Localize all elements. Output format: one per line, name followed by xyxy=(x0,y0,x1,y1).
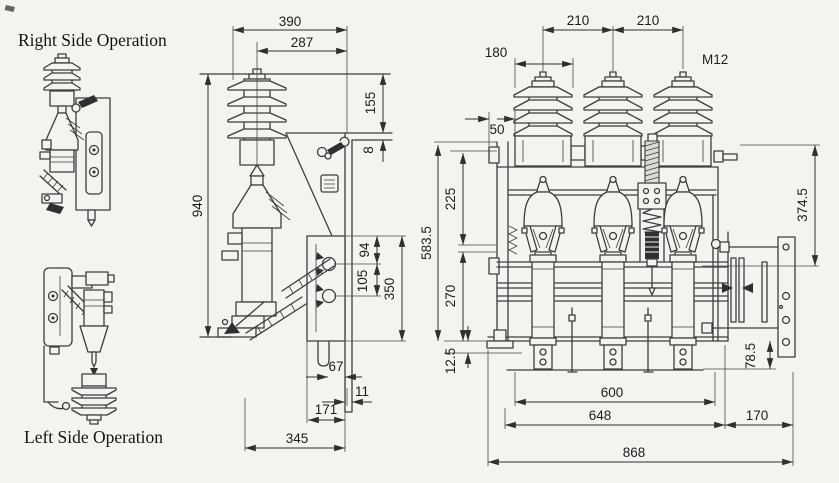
dim-8: 8 xyxy=(361,146,376,154)
dim-940: 940 xyxy=(190,195,205,218)
dim-868: 868 xyxy=(623,445,646,460)
dim-50: 50 xyxy=(489,122,504,137)
dim-345: 345 xyxy=(286,431,309,446)
dim-12-5: 12.5 xyxy=(443,348,458,374)
caption-right-side-operation: Right Side Operation xyxy=(18,30,167,50)
label-m12: M12 xyxy=(702,52,728,67)
dim-270: 270 xyxy=(443,285,458,308)
dim-648: 648 xyxy=(589,408,612,423)
dim-390: 390 xyxy=(279,14,302,29)
front-view-drawing xyxy=(434,72,820,372)
left-side-operation-figure xyxy=(44,268,116,424)
dim-171: 171 xyxy=(315,402,338,417)
dim-94: 94 xyxy=(357,242,372,258)
dim-210-right: 210 xyxy=(637,13,660,28)
drawing-sheet: Right Side Operation Left Side Operation xyxy=(0,0,839,483)
dim-225: 225 xyxy=(443,188,458,211)
dim-170: 170 xyxy=(746,408,769,423)
caption-left-side-operation: Left Side Operation xyxy=(24,427,163,447)
dim-180: 180 xyxy=(485,45,508,60)
dim-67: 67 xyxy=(328,359,343,374)
side-view-dimensions: 390 287 155 8 940 94 105 350 67 11 171 3… xyxy=(190,14,406,452)
dim-11: 11 xyxy=(355,384,369,399)
dim-374-5: 374.5 xyxy=(795,188,810,222)
dim-78-5: 78.5 xyxy=(743,343,758,369)
scan-smudge xyxy=(5,5,16,12)
dim-155: 155 xyxy=(363,92,378,115)
right-side-operation-figure xyxy=(40,54,110,226)
technical-drawing: Right Side Operation Left Side Operation xyxy=(0,0,839,483)
dim-287: 287 xyxy=(291,35,314,50)
dim-105: 105 xyxy=(355,270,370,293)
dim-583-5: 583.5 xyxy=(419,226,434,260)
dim-600: 600 xyxy=(601,385,624,400)
dim-210-left: 210 xyxy=(567,13,590,28)
dim-350: 350 xyxy=(382,278,397,301)
